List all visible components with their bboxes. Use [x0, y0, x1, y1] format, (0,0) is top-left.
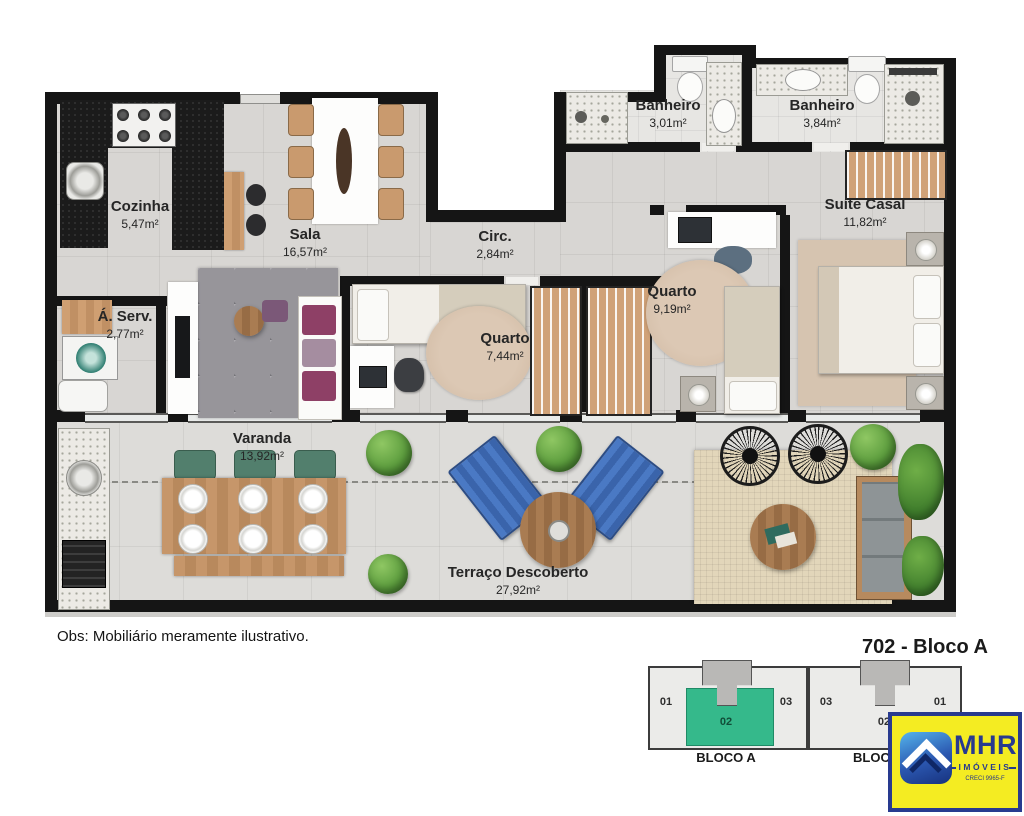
desk [350, 346, 394, 408]
room-label-terraco: Terraço Descoberto 27,92m² [428, 564, 608, 598]
door-opening [814, 143, 848, 151]
room-label-area-servico: Á. Serv. 2,77m² [70, 308, 180, 342]
sofa-cushion [302, 339, 336, 367]
room-name: Sala [245, 226, 365, 245]
side-table [234, 306, 264, 336]
room-name: Á. Serv. [70, 308, 180, 327]
room-label-suite-casal: Suíte Casal 11,82m² [805, 196, 925, 230]
burner [138, 130, 150, 142]
glass-door [85, 413, 168, 423]
plate [238, 524, 268, 554]
bench [174, 556, 344, 576]
table-center [548, 520, 570, 542]
shower-head [575, 111, 587, 123]
wall [426, 92, 438, 222]
keyplan-title: 702 - Bloco A [758, 636, 988, 659]
room-area: 3,84m² [762, 116, 882, 131]
glass-door [696, 413, 788, 423]
house-roof-icon [900, 732, 952, 784]
tv-panel [168, 282, 198, 414]
dining-chair [288, 188, 314, 220]
linear-drain [889, 68, 937, 75]
unit-label: 02 [706, 716, 746, 728]
laundry-sink [58, 380, 108, 412]
room-name: Circ. [435, 228, 555, 247]
outdoor-sink [66, 460, 102, 496]
floor-plan: Cozinha 5,47m² Sala 16,57m² Banheiro 3,0… [0, 0, 1024, 816]
sink [785, 69, 821, 91]
keyplan-block-a: 01 02 03 [648, 666, 808, 750]
room-label-circ: Circ. 2,84m² [435, 228, 555, 262]
desk-chair [394, 358, 424, 392]
plate [298, 524, 328, 554]
dining-chair [288, 146, 314, 178]
room-label-varanda: Varanda 13,92m² [202, 430, 322, 464]
room-name: Suíte Casal [805, 196, 925, 215]
room-name: Cozinha [80, 198, 200, 217]
unit-label: 03 [812, 696, 840, 708]
wall [650, 205, 664, 215]
fire-table [520, 492, 596, 568]
window [240, 94, 282, 104]
sofa-cushion [302, 305, 336, 335]
glass-door [806, 413, 920, 423]
pillow [913, 275, 941, 319]
room-label-banheiro-2: Banheiro 3,84m² [762, 97, 882, 131]
room-area: 11,82m² [805, 215, 925, 230]
room-name: Banheiro [608, 97, 728, 116]
lamp [688, 384, 710, 406]
wardrobe [845, 150, 947, 200]
chair-hub [742, 448, 758, 464]
shower-head [905, 91, 920, 106]
logo-registration: CRECI 9965-F [954, 776, 1016, 782]
room-area: 7,44m² [445, 349, 565, 364]
acapulco-chair [788, 424, 848, 484]
burner [159, 130, 171, 142]
glass-door [360, 413, 446, 423]
plan-shadow [45, 612, 956, 617]
agency-logo: MHR IMÓVEIS CRECI 9965-F [888, 712, 1022, 812]
dining-chair [378, 188, 404, 220]
burner [117, 130, 129, 142]
burner [159, 109, 171, 121]
wall [920, 410, 956, 422]
laptop [359, 366, 387, 388]
plate [178, 484, 208, 514]
plant [536, 426, 582, 472]
plate [178, 524, 208, 554]
room-area: 2,77m² [70, 327, 180, 342]
room-name: Varanda [202, 430, 322, 449]
room-name: Terraço Descoberto [428, 564, 608, 583]
bed-runner [819, 267, 839, 373]
disclaimer-note: Obs: Mobiliário meramente ilustrativo. [57, 628, 309, 645]
room-area: 3,01m² [608, 116, 728, 131]
room-area: 5,47m² [80, 217, 200, 232]
nightstand [906, 376, 944, 410]
room-label-banheiro-1: Banheiro 3,01m² [608, 97, 728, 131]
room-label-quarto-2: Quarto 9,19m² [612, 283, 732, 317]
stove [112, 103, 176, 147]
wall [654, 45, 754, 55]
lamp [915, 383, 937, 405]
unit-label: 01 [926, 696, 954, 708]
nightstand [906, 232, 944, 266]
toilet-tank [848, 56, 886, 72]
wall [45, 92, 57, 612]
room-area: 2,84m² [435, 247, 555, 262]
wall [446, 410, 468, 422]
room-area: 13,92m² [202, 449, 322, 464]
block-a-label: BLOCO A [648, 750, 804, 765]
unit-label: 01 [652, 696, 680, 708]
dining-chair [378, 146, 404, 178]
kitchen-bar-table [224, 172, 244, 250]
logo-brand: MHR [954, 732, 1016, 759]
washer-drum [76, 343, 106, 373]
sofa-cushion [302, 371, 336, 401]
wall [780, 215, 790, 420]
room-name: Quarto [445, 330, 565, 349]
room-area: 9,19m² [612, 302, 732, 317]
nightstand [680, 376, 716, 412]
laptop [678, 217, 712, 243]
chair-hub [810, 446, 826, 462]
room-name: Banheiro [762, 97, 882, 116]
barbecue-grill [62, 540, 106, 588]
pillow [357, 289, 389, 341]
desk [668, 212, 776, 248]
washing-machine [62, 336, 118, 380]
room-area: 27,92m² [428, 583, 608, 598]
burner [117, 109, 129, 121]
dining-chair [378, 104, 404, 136]
logo-subtitle: IMÓVEIS [954, 762, 1016, 772]
dining-chair [288, 104, 314, 136]
table-centerpiece [336, 128, 352, 194]
blanket [725, 287, 779, 377]
room-area: 16,57m² [245, 245, 365, 260]
unit-label: 03 [772, 696, 800, 708]
plant [368, 554, 408, 594]
pillow [729, 381, 777, 411]
room-label-cozinha: Cozinha 5,47m² [80, 198, 200, 232]
logo-dash [1009, 767, 1016, 769]
wall [554, 92, 566, 222]
plate [238, 484, 268, 514]
plate [298, 484, 328, 514]
wall [426, 210, 566, 222]
single-bed [724, 286, 780, 414]
wall [788, 410, 806, 422]
kitchen-sink [66, 162, 104, 200]
toilet-tank [672, 56, 708, 72]
plant [850, 424, 896, 470]
wall [742, 52, 752, 144]
vanity [756, 64, 848, 96]
plant [366, 430, 412, 476]
sofa-cushions [862, 482, 904, 592]
ottoman [262, 300, 288, 322]
lamp [915, 239, 937, 261]
shower [884, 64, 944, 144]
sofa [298, 296, 342, 420]
double-bed [818, 266, 944, 374]
room-label-sala: Sala 16,57m² [245, 226, 365, 260]
coffee-table [750, 504, 816, 570]
room-name: Quarto [612, 283, 732, 302]
burner [138, 109, 150, 121]
room-label-quarto-1: Quarto 7,44m² [445, 330, 565, 364]
elevator-core [860, 660, 910, 706]
pillow [913, 323, 941, 367]
acapulco-chair [720, 426, 780, 486]
bar-stool [246, 184, 266, 206]
